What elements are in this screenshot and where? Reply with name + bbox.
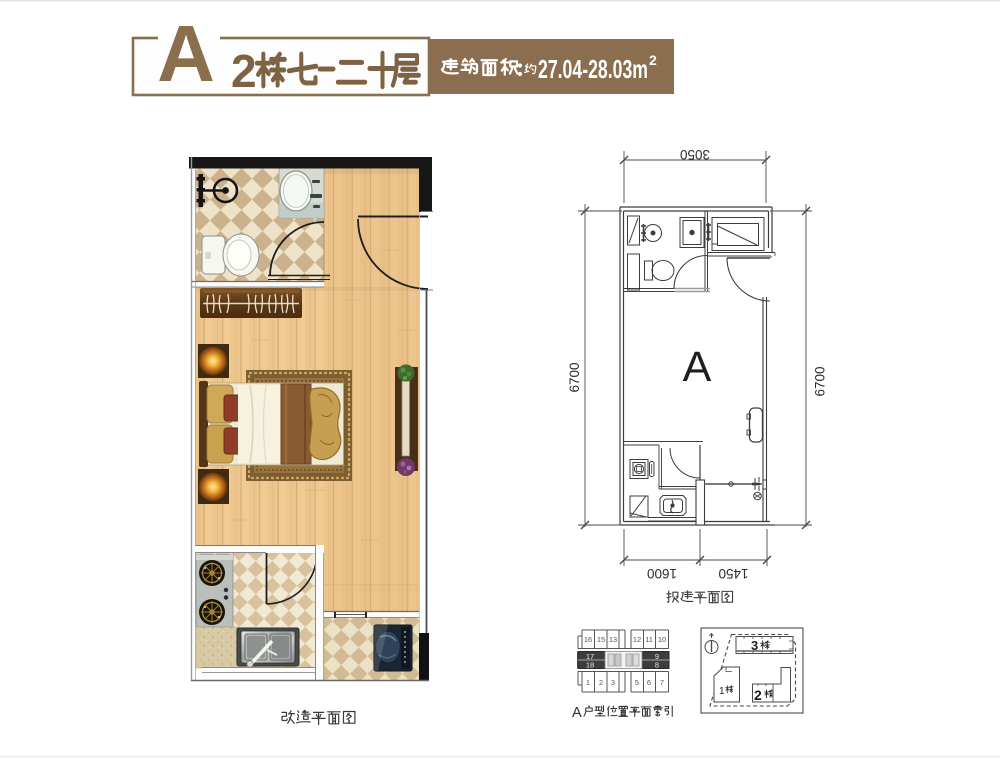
svg-text:A: A bbox=[572, 705, 582, 721]
svg-text:1: 1 bbox=[719, 686, 725, 697]
svg-text:2: 2 bbox=[231, 45, 257, 97]
svg-text:5: 5 bbox=[635, 678, 639, 687]
svg-text:15: 15 bbox=[597, 635, 605, 644]
svg-text:12: 12 bbox=[633, 635, 641, 644]
svg-text:11: 11 bbox=[645, 635, 653, 644]
svg-text:A: A bbox=[157, 9, 215, 98]
svg-text:2: 2 bbox=[754, 687, 762, 703]
svg-text:3050: 3050 bbox=[680, 147, 710, 162]
svg-text:6: 6 bbox=[647, 678, 651, 687]
svg-text:6700: 6700 bbox=[567, 362, 582, 392]
svg-text:3: 3 bbox=[751, 638, 758, 653]
svg-text:16: 16 bbox=[584, 635, 592, 644]
svg-text:10: 10 bbox=[658, 635, 666, 644]
svg-text:3: 3 bbox=[611, 678, 615, 687]
svg-text:18: 18 bbox=[586, 661, 594, 670]
svg-text:A: A bbox=[683, 343, 712, 391]
svg-text:1: 1 bbox=[586, 678, 590, 687]
svg-text:8: 8 bbox=[655, 661, 659, 670]
svg-text:2: 2 bbox=[649, 52, 657, 68]
svg-text:27.04-28.03m: 27.04-28.03m bbox=[538, 54, 648, 84]
svg-text:1600: 1600 bbox=[647, 566, 677, 581]
svg-text:6700: 6700 bbox=[813, 366, 828, 396]
svg-text:2: 2 bbox=[599, 678, 603, 687]
svg-text:7: 7 bbox=[660, 678, 664, 687]
svg-text:13: 13 bbox=[609, 635, 617, 644]
svg-text:1450: 1450 bbox=[718, 566, 748, 581]
